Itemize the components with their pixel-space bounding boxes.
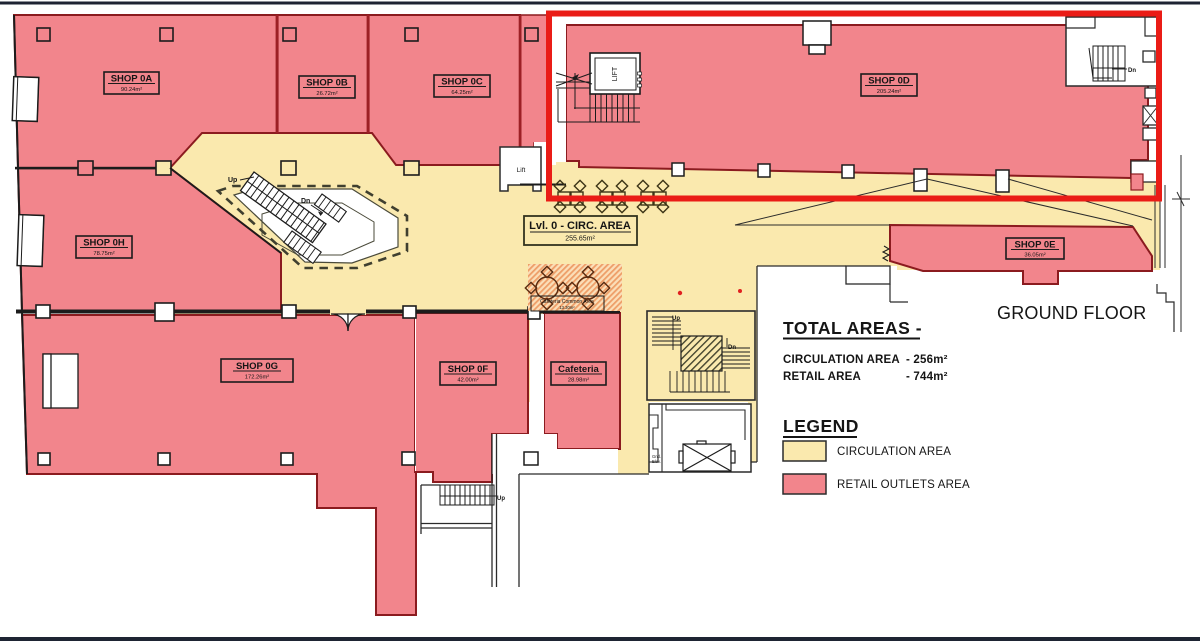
svg-text:Dn: Dn [1128,68,1136,74]
svg-text:26.72m²: 26.72m² [316,91,337,97]
svg-text:LIFT: LIFT [612,66,619,81]
svg-text:78.75m²: 78.75m² [93,251,114,257]
svg-text:42.00m²: 42.00m² [457,378,478,384]
svg-text:SHOP 0F: SHOP 0F [448,364,489,375]
svg-text:36.05m²: 36.05m² [1024,253,1045,259]
svg-text:SHOP 0C: SHOP 0C [441,77,483,88]
svg-text:CIRCULATION AREA: CIRCULATION AREA [837,446,951,458]
svg-text:28.98m²: 28.98m² [568,378,589,384]
svg-text:255.65m²: 255.65m² [565,236,595,243]
svg-text:GROUND FLOOR: GROUND FLOOR [997,303,1146,323]
svg-text:LEGEND: LEGEND [783,416,859,436]
svg-text:RETAIL OUTLETS AREA: RETAIL OUTLETS AREA [837,479,970,491]
svg-text:Up: Up [228,177,237,184]
svg-text:SHOP 0H: SHOP 0H [83,238,125,249]
svg-text:SHOP 0D: SHOP 0D [868,76,910,87]
svg-text:Up: Up [497,496,505,502]
svg-text:205.24m²: 205.24m² [877,89,902,95]
svg-text:Elev.: Elev. [652,459,661,464]
svg-text:SHOP 0A: SHOP 0A [111,74,153,85]
svg-text:TOTAL AREAS -: TOTAL AREAS - [783,318,922,338]
svg-text:Dn: Dn [301,198,310,205]
svg-text:RETAIL AREA: RETAIL AREA [783,371,861,383]
svg-text:SHOP 0B: SHOP 0B [306,78,348,89]
svg-text:Dn: Dn [728,345,736,351]
svg-text:- 744m²: - 744m² [906,371,948,383]
svg-text:64.25m²: 64.25m² [451,90,472,96]
svg-text:- 256m²: - 256m² [906,354,948,366]
svg-text:172.26m²: 172.26m² [245,375,270,381]
svg-text:Lvl. 0 - CIRC. AREA: Lvl. 0 - CIRC. AREA [529,220,631,232]
svg-text:CIRCULATION AREA: CIRCULATION AREA [783,354,900,366]
svg-text:Lift: Lift [517,167,526,174]
svg-text:90.24m²: 90.24m² [121,87,142,93]
svg-text:SHOP 0G: SHOP 0G [236,361,278,372]
svg-text:Up: Up [672,316,680,322]
svg-text:Cafeteria: Cafeteria [558,364,599,375]
svg-text:SHOP 0E: SHOP 0E [1014,240,1055,251]
svg-text:13.30m²: 13.30m² [559,305,575,310]
